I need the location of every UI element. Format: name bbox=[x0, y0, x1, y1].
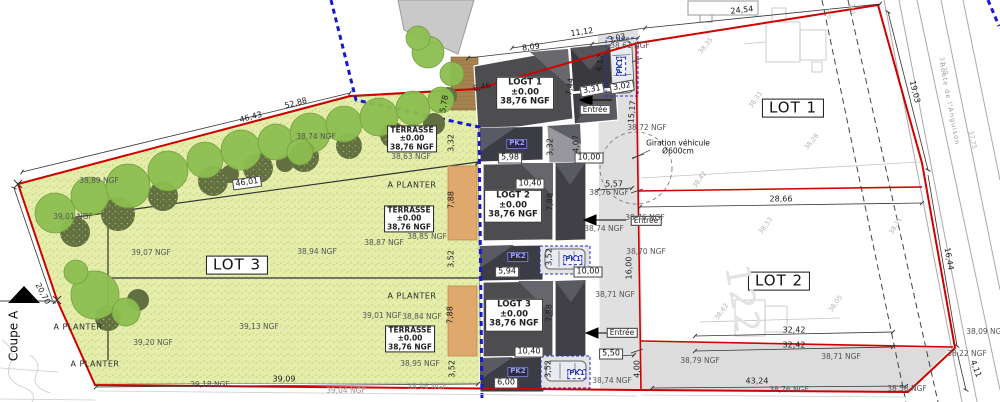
dimension-label: 5,78 bbox=[439, 94, 451, 113]
dimension-label: 3,52 bbox=[448, 250, 457, 268]
elevation-label: 38,76 NGF bbox=[589, 189, 629, 197]
dimension-label: 6,46 bbox=[472, 82, 491, 94]
pk1-label: PK1 bbox=[563, 255, 582, 265]
dimension-label: 10,00 bbox=[575, 153, 604, 164]
dimension-label: 20,70 bbox=[33, 282, 52, 306]
dimension-label: 7,88 bbox=[546, 304, 555, 322]
plan-labels: LOT 1LOT 2LOT 3LOGT 1 ±0.00 38,76 NGFLOG… bbox=[0, 0, 1000, 402]
elevation-label: 38,71 NGF bbox=[821, 353, 861, 361]
dimension-label: 10,00 bbox=[574, 267, 603, 278]
entree-label-logt3: Entrée bbox=[607, 328, 638, 338]
pk1-label: PK1 bbox=[616, 56, 626, 75]
terrasse-label-2: TERRASSE ±0.00 38,76 NGF bbox=[384, 205, 434, 232]
elevation-label: 39,01 NGF bbox=[362, 312, 402, 320]
dimension-label: 7,88 bbox=[547, 193, 556, 211]
dimension-label: 3,32 bbox=[448, 134, 457, 152]
dimension-label: 8,09 bbox=[522, 42, 541, 53]
survey-point-label: 38,28 bbox=[803, 133, 821, 152]
dimension-label: 28,66 bbox=[770, 196, 793, 205]
dimension-label: 10,40 bbox=[515, 347, 544, 358]
elevation-label: 39,04 NGF bbox=[326, 387, 366, 395]
a-planter-label: A PLANTER bbox=[388, 293, 437, 302]
dimension-label: 3,52 bbox=[449, 360, 458, 378]
elevation-label: 38,71 NGF bbox=[595, 291, 635, 299]
dimension-label: 7,44 bbox=[565, 78, 576, 97]
survey-point-label: 37,75 bbox=[966, 130, 978, 150]
elevation-label: 38,61 NGF bbox=[610, 42, 650, 50]
logt3-label: LOGT 3 ±0.00 38,76 NGF bbox=[485, 299, 543, 332]
elevation-label: 39,07 NGF bbox=[131, 249, 171, 257]
dimension-label: 3,02 bbox=[609, 80, 634, 95]
elevation-label: 38,87 NGF bbox=[364, 239, 404, 247]
dimension-label: 15,17 bbox=[627, 100, 638, 124]
dimension-label: 4,07 bbox=[573, 135, 582, 153]
dimension-label: 6,00 bbox=[494, 378, 518, 389]
dimension-label: 5,50 bbox=[599, 349, 623, 360]
dimension-label: 4,17 bbox=[595, 54, 606, 73]
terrasse-label-3: TERRASSE ±0.00 38,76 NGF bbox=[385, 325, 435, 352]
dimension-label: 16,44 bbox=[942, 247, 955, 271]
elevation-label: 38,96 NGF bbox=[407, 383, 447, 391]
dimension-label: 52,88 bbox=[284, 97, 308, 112]
survey-point-label: 38,42 bbox=[692, 170, 709, 189]
elevation-label: 38,70 NGF bbox=[626, 248, 666, 256]
lot3-label: LOT 3 bbox=[206, 256, 268, 275]
dimension-label: 32,42 bbox=[783, 327, 806, 336]
dimension-label: 5,98 bbox=[498, 153, 522, 164]
elevation-label: 39,13 NGF bbox=[239, 323, 279, 331]
a-planter-label: A PLANTER bbox=[71, 361, 120, 370]
dimension-label: 32,42 bbox=[783, 342, 806, 351]
survey-point-label: 38,05 bbox=[828, 294, 845, 313]
logt1-label: LOGT 1 ±0.00 38,76 NGF bbox=[496, 77, 554, 110]
elevation-label: 38,76 NGF bbox=[625, 214, 665, 222]
elevation-label: 38,74 NGF bbox=[592, 377, 632, 385]
pk2-label: PK2 bbox=[506, 139, 527, 149]
elevation-label: 39,01 NGF bbox=[53, 213, 93, 221]
dimension-label: 3,31 bbox=[579, 83, 604, 98]
setback-label: 5m bbox=[823, 8, 832, 20]
dimension-label: 11,12 bbox=[570, 27, 594, 39]
dimension-label: 3,32 bbox=[547, 138, 556, 156]
setback-label: 3m bbox=[847, 3, 856, 15]
elevation-label: 38,85 NGF bbox=[407, 233, 447, 241]
dimension-label: 19,03 bbox=[907, 80, 921, 104]
pk2-label: PK2 bbox=[507, 367, 528, 377]
elevation-label: 38,58 NGF bbox=[887, 385, 927, 393]
elevation-label: 38,74 NGF bbox=[296, 133, 336, 141]
dimension-label: 43,24 bbox=[746, 378, 769, 387]
dimension-label: 7,88 bbox=[448, 191, 457, 209]
elevation-label: 38,94 NGF bbox=[297, 248, 337, 256]
dimension-label: 4,00 bbox=[634, 360, 643, 378]
a-planter-label: A PLANTER bbox=[54, 324, 103, 333]
giration-label: Giration véhicule Ø600cm bbox=[646, 140, 710, 157]
survey-point-label: 38,35 bbox=[697, 37, 715, 56]
elevation-label: 38,95 NGF bbox=[400, 360, 440, 368]
elevation-label: 39,20 NGF bbox=[133, 339, 173, 347]
dimension-label: 4,11 bbox=[968, 359, 983, 379]
site-plan: LOT 1LOT 2LOT 3LOGT 1 ±0.00 38,76 NGFLOG… bbox=[0, 0, 1000, 402]
elevation-label: 38,76 NGF bbox=[769, 386, 809, 394]
dimension-label: 5,94 bbox=[495, 267, 519, 278]
dimension-label: 16,00 bbox=[626, 257, 635, 280]
elevation-label: 39,18 NGF bbox=[190, 381, 230, 389]
survey-point-label: 38,33 bbox=[758, 216, 775, 235]
survey-point-label: 38,11 bbox=[888, 216, 904, 236]
terrasse-label-1: TERRASSE ±0.00 38,76 NGF bbox=[387, 125, 437, 152]
dimension-label: 46,43 bbox=[239, 111, 263, 126]
entree-label-logt1: Entrée bbox=[580, 105, 611, 115]
dimension-label: 3,52 bbox=[546, 248, 555, 266]
lot1-label: LOT 1 bbox=[762, 99, 824, 118]
elevation-label: 38,72 NGF bbox=[627, 124, 667, 132]
coupe-a-label: Coupe A bbox=[7, 311, 20, 361]
elevation-label: 38,89 NGF bbox=[79, 177, 119, 185]
elevation-label: 38,84 NGF bbox=[402, 313, 442, 321]
dimension-label: 7,88 bbox=[447, 306, 456, 324]
elevation-label: 38,74 NGF bbox=[584, 225, 624, 233]
dimension-label: 3,52 bbox=[545, 360, 554, 378]
dimension-label: 10,40 bbox=[516, 179, 545, 190]
a-planter-label: A PLANTER bbox=[388, 182, 437, 191]
elevation-label: 38,63 NGF bbox=[391, 153, 431, 161]
elevation-label: 38,09 NGF bbox=[966, 328, 1000, 336]
dimension-label: 39,09 bbox=[273, 376, 296, 385]
dimension-label: 46,01 bbox=[232, 176, 262, 191]
pk2-label: PK2 bbox=[507, 252, 528, 262]
dimension-label: 24,54 bbox=[730, 5, 754, 16]
elevation-label: 38,79 NGF bbox=[680, 357, 720, 365]
elevation-label: 38,22 NGF bbox=[947, 350, 987, 358]
pk1-label: PK1 bbox=[567, 369, 586, 379]
logt2-label: LOGT 2 ±0.00 38,76 NGF bbox=[484, 190, 542, 223]
